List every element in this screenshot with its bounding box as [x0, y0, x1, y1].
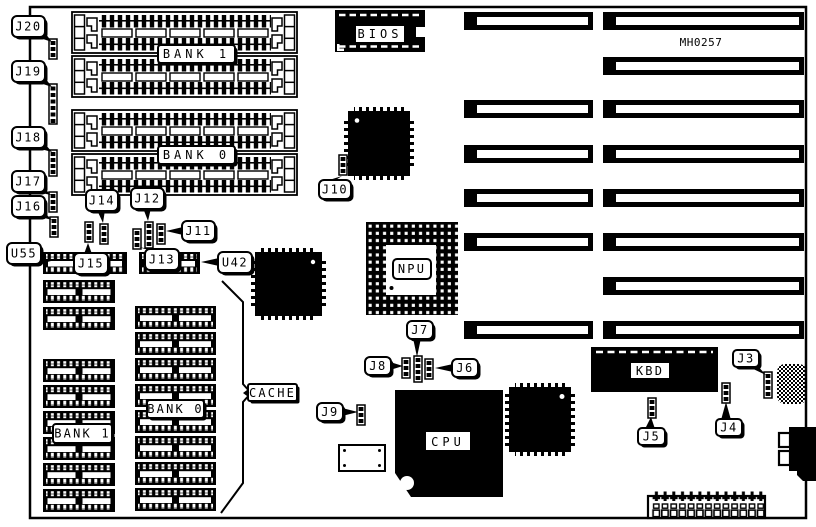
svg-text:J10: J10 — [322, 183, 348, 197]
cache-sram-socket — [43, 359, 115, 382]
jumper-j14 — [100, 224, 108, 244]
svg-text:BANK 1: BANK 1 — [163, 47, 230, 61]
svg-text:J8: J8 — [369, 359, 386, 373]
svg-text:U42: U42 — [222, 256, 248, 270]
jumper-j3 — [764, 372, 772, 398]
jumper-j7 — [414, 356, 422, 382]
svg-text:J18: J18 — [15, 131, 41, 145]
pin1-dot — [311, 260, 315, 264]
isa-slot-extension — [464, 233, 593, 251]
callout-j6: J6 — [435, 359, 481, 380]
svg-text:U55: U55 — [11, 247, 37, 261]
cache-sram-socket — [43, 307, 115, 330]
jumper-j15 — [85, 222, 93, 242]
cache-sram-socket — [43, 489, 115, 512]
speaker-grille — [777, 364, 807, 404]
jumper-j8 — [402, 358, 410, 378]
svg-text:J14: J14 — [89, 194, 115, 208]
callout-j16: J16 — [12, 196, 52, 220]
callout-j17: J17 — [12, 171, 51, 195]
svg-text:J12: J12 — [134, 192, 160, 206]
pin1-dot — [560, 394, 565, 399]
isa-slot — [603, 145, 804, 163]
svg-text:J15: J15 — [78, 257, 104, 271]
pin1-dot — [355, 118, 360, 123]
jumper-j17 — [49, 192, 57, 212]
cache-sram-socket — [135, 488, 216, 511]
callout-j10: J10 — [319, 176, 354, 202]
callout-j14: J14 — [86, 190, 121, 223]
cache-sram-socket — [135, 332, 216, 355]
jumper-j13 — [133, 229, 141, 249]
part-number-text: MH0257 — [680, 36, 723, 49]
cache-sram-socket — [135, 462, 216, 485]
svg-text:BANK 0: BANK 0 — [163, 148, 230, 162]
isa-slot-extension — [464, 189, 593, 207]
isa-slot — [603, 57, 804, 75]
svg-text:J19: J19 — [15, 65, 41, 79]
jumper-j11 — [157, 224, 165, 244]
cache-sram-socket — [135, 436, 216, 459]
cache-sram-socket — [43, 463, 115, 486]
callout-u42: U42 — [201, 252, 255, 276]
callout-j15: J15 — [74, 243, 111, 277]
svg-text:J13: J13 — [149, 253, 175, 267]
jumper-j19 — [49, 84, 57, 124]
chipset-qfp-b — [251, 248, 326, 320]
crystal-oscillator — [339, 445, 385, 471]
callout-j9: J9 — [317, 403, 358, 424]
svg-text:BANK 1: BANK 1 — [54, 427, 111, 441]
svg-text:J9: J9 — [321, 405, 338, 419]
chipset-qfp-a — [344, 107, 414, 180]
svg-text:J16: J16 — [15, 200, 41, 214]
cpu-label: CPU — [431, 435, 465, 449]
isa-slot — [603, 321, 804, 339]
callout-j3: J3 — [733, 350, 766, 375]
kbd-label: KBD — [636, 364, 664, 378]
isa-slot-extension — [464, 321, 593, 339]
cache-sram-socket — [43, 385, 115, 408]
isa-slot — [603, 100, 804, 118]
isa-slot-extension — [464, 100, 593, 118]
isa-slot — [603, 12, 804, 30]
chipset-qfp-c — [505, 383, 575, 456]
power-connector — [648, 492, 765, 519]
svg-text:J20: J20 — [15, 20, 41, 34]
svg-text:CACHE: CACHE — [249, 386, 296, 400]
callout-j7: J7 — [407, 321, 436, 357]
motherboard-diagram: MH0257 BIOS NPU — [0, 0, 816, 527]
callout-j5: J5 — [638, 417, 668, 448]
cache-sram-socket — [135, 358, 216, 381]
simm-socket — [72, 110, 297, 151]
cache-sram-socket — [135, 306, 216, 329]
svg-text:J3: J3 — [737, 352, 754, 366]
isa-slot — [603, 189, 804, 207]
jumper-j10 — [339, 155, 347, 175]
callout-j18: J18 — [12, 127, 52, 152]
isa-slot-extension — [464, 12, 593, 30]
svg-text:J4: J4 — [720, 421, 737, 435]
npu-socket: NPU — [366, 222, 458, 315]
bios-chip: BIOS — [335, 10, 425, 52]
svg-text:J11: J11 — [185, 224, 211, 238]
simm-bank1-label: BANK 1 — [158, 45, 238, 66]
svg-text:J7: J7 — [411, 323, 428, 337]
isa-slot — [603, 277, 804, 295]
callout-j4: J4 — [716, 402, 745, 439]
jumper-j18 — [49, 150, 57, 176]
cache-brace — [221, 281, 251, 513]
simm-bank0-label: BANK 0 — [158, 146, 238, 167]
isa-slot-extension — [464, 145, 593, 163]
jumper-j12 — [145, 222, 153, 248]
callout-j12: J12 — [131, 188, 167, 221]
callout-j8: J8 — [365, 357, 403, 378]
keyboard-din-connector — [779, 427, 816, 481]
callout-j19: J19 — [12, 61, 52, 87]
cache-bank0-label: BANK 0 — [147, 400, 207, 421]
isa-slot — [603, 233, 804, 251]
callout-j20: J20 — [12, 16, 52, 42]
jumper-j5 — [648, 398, 656, 418]
kbd-chip: KBD — [591, 347, 718, 392]
cache-label: CACHE — [243, 384, 300, 404]
jumper-j20 — [49, 39, 57, 59]
cache-sram-socket — [43, 280, 115, 303]
callout-j11: J11 — [166, 221, 218, 244]
svg-text:J6: J6 — [456, 361, 473, 375]
jumper-j4 — [722, 383, 730, 403]
jumper-j9 — [357, 405, 365, 425]
svg-text:BANK 0: BANK 0 — [147, 402, 204, 416]
jumper-j16 — [50, 217, 58, 237]
svg-text:J17: J17 — [15, 175, 41, 189]
cache-bank1-label: BANK 1 — [53, 424, 115, 446]
cpu-chip: CPU — [395, 390, 503, 497]
svg-text:J5: J5 — [643, 430, 660, 444]
jumper-j6 — [425, 359, 433, 379]
pin1-dot — [400, 476, 414, 490]
bios-label: BIOS — [358, 27, 403, 41]
npu-label: NPU — [398, 262, 426, 276]
pin1-dot — [390, 286, 394, 290]
